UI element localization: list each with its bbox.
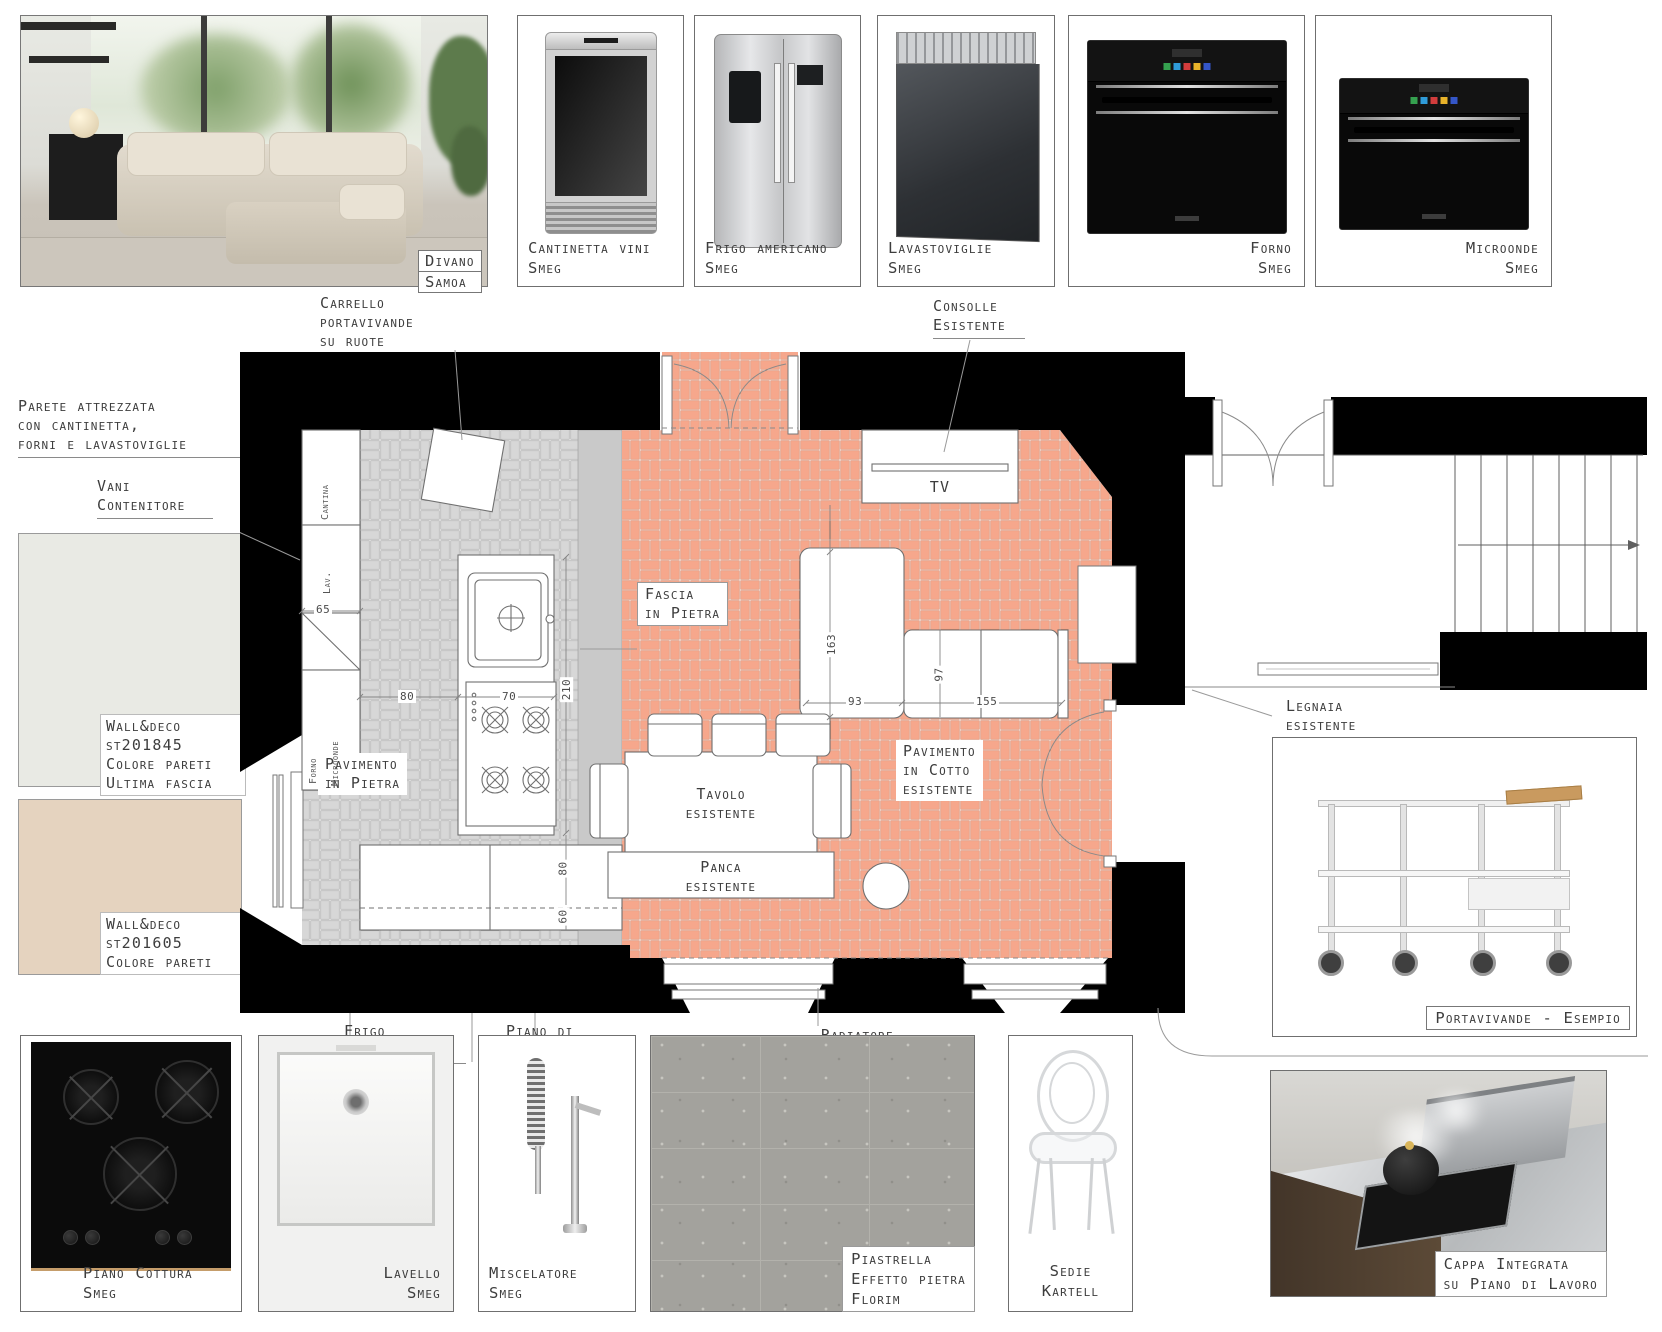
product-card-forno: FornoSmeg — [1068, 15, 1305, 287]
microwave-image — [1339, 78, 1529, 230]
product-label: FornoSmeg — [1250, 238, 1292, 278]
card-piano-cottura: Piano CotturaSmeg — [20, 1035, 242, 1312]
dim-97: 97 — [933, 665, 946, 683]
dim-155: 155 — [974, 695, 999, 708]
product-card-lavastoviglie: LavastoviglieSmeg — [877, 15, 1055, 287]
label-unit-microonde: Microonde — [330, 678, 341, 786]
label-unit-forno: Forno — [308, 684, 319, 784]
dim-65: 65 — [314, 603, 332, 616]
card-sedie: SedieKartell — [1008, 1035, 1133, 1312]
product-card-microonde: MicroondeSmeg — [1315, 15, 1552, 287]
annotation-parete: Parete attrezzata con cantinetta, forni … — [18, 397, 246, 458]
tree-foliage — [141, 34, 291, 144]
card-piastrella: PiastrellaEffetto pietraFlorim — [650, 1035, 975, 1312]
label-tavolo: Tavoloesistente — [641, 785, 801, 823]
product-card-cantinetta: Cantinetta viniSmeg — [517, 15, 684, 287]
dishwasher-image — [896, 32, 1036, 237]
annotation-vani: Vani Contenitore — [97, 477, 213, 519]
serving-cart-image — [1318, 758, 1588, 978]
sofa-label-line: Divano — [418, 250, 482, 272]
wall-shelf — [29, 56, 109, 63]
product-label: Cantinetta viniSmeg — [528, 238, 651, 278]
product-card-frigo: Frigo americanoSmeg — [694, 15, 861, 287]
portavivande-card: Portavivande - Esempio — [1272, 737, 1637, 1037]
label-tv: TV — [880, 478, 1000, 497]
table-lamp — [69, 108, 99, 138]
sofa-pillow — [339, 184, 405, 220]
hob-image — [31, 1042, 231, 1271]
moodboard-page: { "top_row": { "sofa_label": ["Divano", … — [0, 0, 1662, 1332]
label-pavimento-cotto: Pavimentoin Cottoesistente — [896, 740, 983, 801]
product-label: LavastoviglieSmeg — [888, 238, 992, 278]
product-label: Frigo americanoSmeg — [705, 238, 828, 278]
dim-80b: 80 — [557, 859, 570, 877]
card-label: LavelloSmeg — [384, 1263, 441, 1303]
dim-93: 93 — [846, 695, 864, 708]
wall-shelf — [21, 22, 116, 30]
card-lavello: LavelloSmeg — [258, 1035, 454, 1312]
card-label: Cappa Integratasu Piano di Lavoro — [1435, 1251, 1607, 1297]
pot-knob — [1405, 1141, 1414, 1150]
plant — [451, 126, 488, 196]
label-unit-lav: Lav. — [322, 548, 333, 594]
label-panca: Pancaesistente — [641, 858, 801, 896]
annotation-legnaia: Legnaia esistente — [1286, 697, 1398, 739]
tap-holes — [336, 1045, 376, 1051]
dim-60: 60 — [557, 907, 570, 925]
product-label: MicroondeSmeg — [1466, 238, 1539, 278]
dim-210: 210 — [560, 677, 573, 702]
card-cappa: Cappa Integratasu Piano di Lavoro — [1270, 1070, 1607, 1297]
card-label: Piano CotturaSmeg — [83, 1263, 193, 1303]
swatch-2-caption: Wall&decost201605Colore pareti — [100, 912, 246, 975]
tree-foliage — [291, 24, 411, 144]
label-unit-cantina: Cantina — [320, 440, 331, 520]
tap-base — [563, 1224, 587, 1233]
card-miscelatore: MiscelatoreSmeg — [478, 1035, 636, 1312]
sofa-photo — [20, 15, 488, 287]
portavivande-label: Portavivande - Esempio — [1426, 1006, 1630, 1030]
cart-drawer — [1468, 878, 1570, 910]
swatch-1-caption: Wall&decost201845 Colore paretiUltima fa… — [100, 714, 246, 796]
dim-80: 80 — [398, 690, 416, 703]
chair-image — [1023, 1050, 1119, 1240]
sofa-label-line: Samoa — [418, 271, 482, 293]
card-label: SedieKartell — [1009, 1261, 1132, 1301]
wine-cooler-image — [545, 32, 657, 234]
cutting-board — [1506, 785, 1583, 804]
sofa-cushion — [127, 132, 265, 176]
fridge-image — [714, 34, 842, 248]
label-fascia-pietra: Fasciain Pietra — [637, 582, 728, 626]
side-table — [49, 134, 123, 220]
sofa-label: Divano Samoa — [418, 250, 482, 293]
sofa-cushion — [269, 132, 407, 176]
card-label: PiastrellaEffetto pietraFlorim — [842, 1246, 975, 1312]
card-label: MiscelatoreSmeg — [489, 1263, 578, 1303]
oven-image — [1087, 40, 1287, 234]
dim-70: 70 — [500, 690, 518, 703]
dim-163: 163 — [825, 632, 838, 657]
